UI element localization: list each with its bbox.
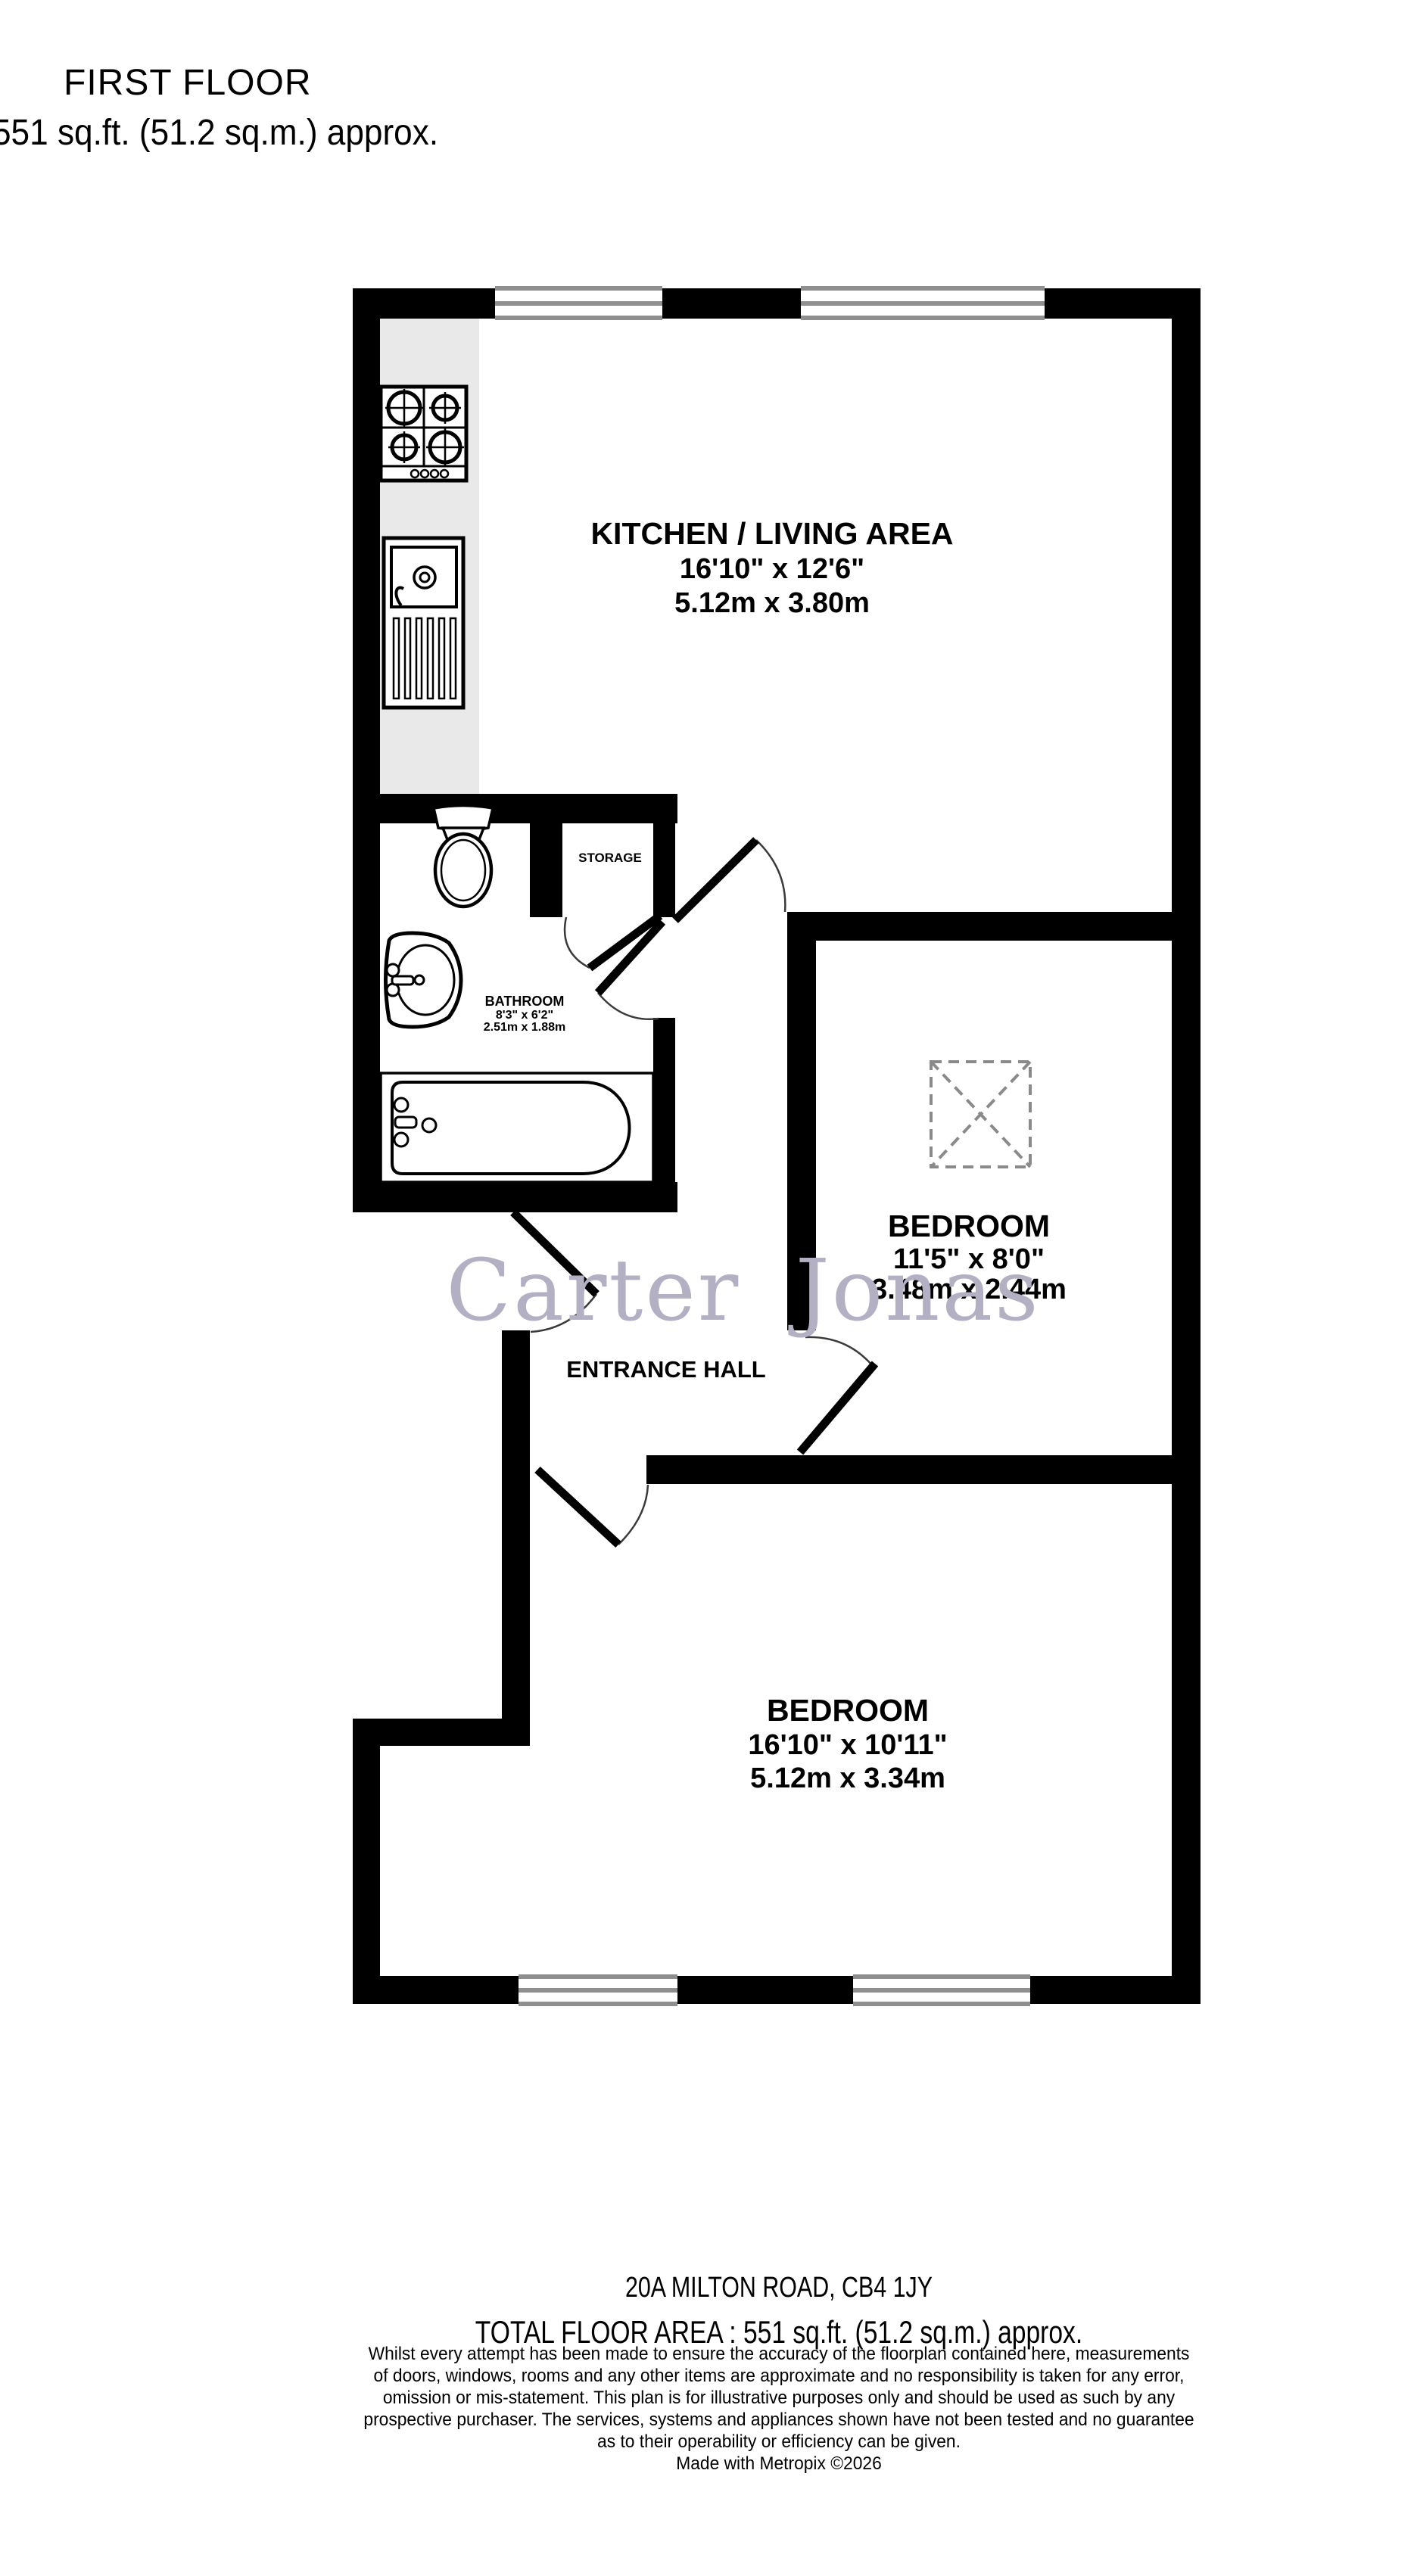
toilet <box>434 806 493 907</box>
agency-watermark: Carter Jonas <box>446 1242 1040 1340</box>
storage-label: STORAGE <box>578 851 642 865</box>
bathroom-dims-metric: 2.51m x 1.88m <box>484 1021 566 1034</box>
bedroom1-label: BEDROOM <box>888 1209 1050 1243</box>
skylight <box>931 1062 1030 1167</box>
floorplan-drawing: KITCHEN / LIVING AREA 16'10" x 12'6" 5.1… <box>0 0 1417 2576</box>
door-kitchen <box>675 840 785 920</box>
bedroom2-dims-imperial: 16'10" x 10'11" <box>748 1729 947 1761</box>
door-bedroom1 <box>800 1337 875 1452</box>
bathtub <box>381 1073 653 1182</box>
window-top-right <box>801 286 1045 321</box>
floorplan-page: FIRST FLOOR 551 sq.ft. (51.2 sq.m.) appr… <box>0 0 1417 2576</box>
kitchen-sink <box>384 538 463 708</box>
hob <box>381 387 466 481</box>
window-bottom-right <box>853 1974 1030 2007</box>
wash-basin <box>386 933 462 1027</box>
bedroom2-dims-metric: 5.12m x 3.34m <box>750 1762 945 1794</box>
window-bottom-left <box>519 1974 677 2007</box>
kitchen-dims-metric: 5.12m x 3.80m <box>674 587 870 619</box>
kitchen-dims-imperial: 16'10" x 12'6" <box>680 553 864 585</box>
window-top-left <box>495 286 662 321</box>
entrance-hall-label: ENTRANCE HALL <box>566 1356 766 1383</box>
bathroom-label: BATHROOM <box>485 994 565 1009</box>
bedroom2-label: BEDROOM <box>767 1693 929 1728</box>
bathroom-dims-imperial: 8'3" x 6'2" <box>496 1009 553 1022</box>
kitchen-label: KITCHEN / LIVING AREA <box>590 516 953 551</box>
door-bedroom2 <box>537 1470 648 1545</box>
